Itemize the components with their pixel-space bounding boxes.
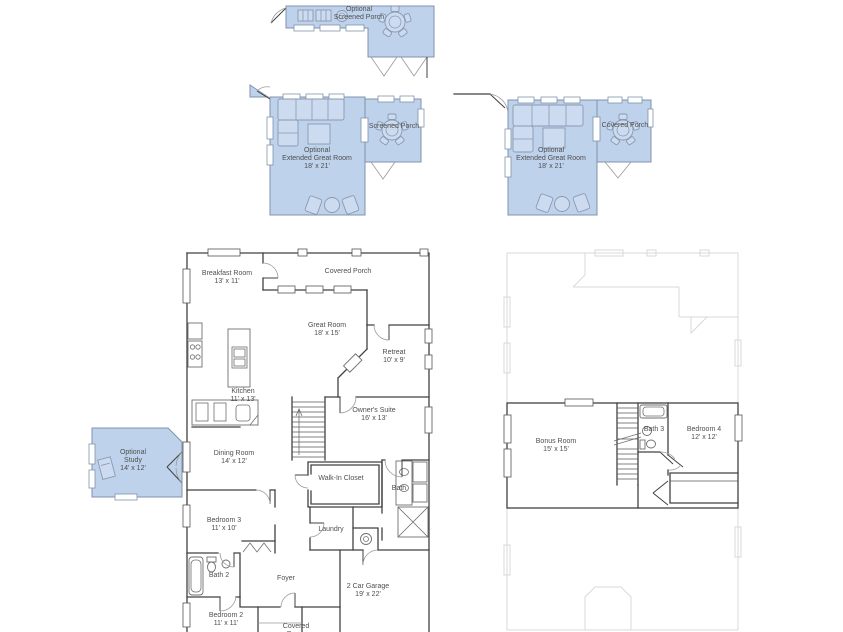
room-dims: 16' x 13' xyxy=(334,415,414,423)
room-name: 2 Car Garage xyxy=(328,583,408,591)
vanity-icon xyxy=(396,461,427,505)
room-label-bedroom-4: Bedroom 4 12' x 12' xyxy=(664,426,744,442)
room-label-foyer: Foyer xyxy=(261,575,311,583)
wall-outline xyxy=(507,403,738,508)
room-name: Owner's Suite xyxy=(334,407,414,415)
room-dims: 11' x 13' xyxy=(213,396,273,404)
room-dims: 18' x 21' xyxy=(496,163,606,171)
room-label-bonus-room: Bonus Room 15' x 15' xyxy=(516,438,596,454)
room-dims: 14' x 12' xyxy=(103,465,163,473)
room-name: Bedroom 4 xyxy=(664,426,744,434)
room-label-owners-suite: Owner's Suite 16' x 13' xyxy=(334,407,414,423)
room-label-great-room: Great Room 18' x 15' xyxy=(287,322,367,338)
room-name: Walk-In Closet xyxy=(317,475,365,483)
bathtub-icon xyxy=(640,405,667,418)
room-name: Bedroom 2 xyxy=(186,612,266,620)
door-swing-icon xyxy=(653,452,683,505)
room-label-garage: 2 Car Garage 19' x 22' xyxy=(328,583,408,599)
sink-icon xyxy=(222,560,230,568)
room-name: Bonus Room xyxy=(516,438,596,446)
room-dims: 15' x 15' xyxy=(516,446,596,454)
room-name: Screened Porch xyxy=(364,123,424,131)
room-label-covered-porch: Covered Porch xyxy=(308,268,388,276)
room-name: Breakfast Room xyxy=(187,270,267,278)
room-label-covered-porch-optional: Covered Porch xyxy=(595,122,655,130)
room-name: Covered Porch xyxy=(274,623,318,632)
refrigerator-icon xyxy=(188,323,202,339)
room-dims: 18' x 21' xyxy=(262,163,372,171)
room-label-dining-room: Dining Room 14' x 12' xyxy=(194,450,274,466)
room-name: Kitchen xyxy=(213,388,273,396)
room-prefix: Optional xyxy=(319,6,399,14)
window xyxy=(294,25,364,31)
room-label-laundry: Laundry xyxy=(301,526,361,534)
stairs-icon xyxy=(614,408,641,479)
room-name: Bath 2 xyxy=(194,572,244,580)
room-label-bedroom-2: Bedroom 2 11' x 11' xyxy=(186,612,266,628)
room-name: Covered Porch xyxy=(595,122,655,130)
room-prefix: Optional xyxy=(262,147,372,155)
room-label-walk-in-closet: Walk-In Closet xyxy=(317,475,365,483)
toilet-icon xyxy=(640,440,656,449)
room-label-ext-great-room-right: Optional Extended Great Room 18' x 21' xyxy=(496,147,606,171)
room-dims: 14' x 12' xyxy=(194,458,274,466)
room-label-kitchen: Kitchen 11' x 13' xyxy=(213,388,273,404)
room-dims: 12' x 12' xyxy=(664,434,744,442)
room-label-bath-2: Bath 2 xyxy=(194,572,244,580)
shower-icon xyxy=(398,507,428,537)
room-label-optional-screened-porch: Optional Screened Porch xyxy=(319,6,399,22)
room-name: Extended Great Room xyxy=(262,155,372,163)
room-name: Covered Porch xyxy=(308,268,388,276)
room-dims: 11' x 11' xyxy=(186,620,266,628)
water-heater-icon xyxy=(361,534,372,545)
armchair-icon xyxy=(305,195,360,215)
floorplan-canvas: Optional Screened Porch Optional Extende… xyxy=(0,0,843,632)
room-label-ext-great-room-left: Optional Extended Great Room 18' x 21' xyxy=(262,147,372,171)
room-dims: 13' x 11' xyxy=(187,278,267,286)
room-name: Dining Room xyxy=(194,450,274,458)
toilet-icon xyxy=(207,557,216,572)
room-name: Extended Great Room xyxy=(496,155,606,163)
coffee-table-icon xyxy=(308,124,330,144)
room-name: Bath xyxy=(379,485,419,493)
room-prefix: Optional xyxy=(103,449,163,457)
room-name: Laundry xyxy=(301,526,361,534)
room-label-bedroom-3: Bedroom 3 11' x 10' xyxy=(184,517,264,533)
door-swing-icon xyxy=(220,263,402,623)
room-label-screened-porch: Screened Porch xyxy=(364,123,424,131)
room-dims: 11' x 10' xyxy=(184,525,264,533)
room-label-front-porch: Covered Porch xyxy=(274,623,318,632)
room-label-optional-study: Optional Study 14' x 12' xyxy=(103,449,163,473)
room-dims: 10' x 9' xyxy=(364,357,424,365)
room-name: Screened Porch xyxy=(319,14,399,22)
room-name: Foyer xyxy=(261,575,311,583)
range-icon xyxy=(188,341,202,367)
window xyxy=(183,249,432,627)
room-dims: 18' x 15' xyxy=(287,330,367,338)
room-label-bath: Bath xyxy=(379,485,419,493)
room-name: Bedroom 3 xyxy=(184,517,264,525)
stairs-icon xyxy=(292,402,325,457)
room-name: Study xyxy=(103,457,163,465)
coffee-table-icon xyxy=(543,128,565,148)
room-dims: 19' x 22' xyxy=(328,591,408,599)
room-name: Great Room xyxy=(287,322,367,330)
room-name: Retreat xyxy=(364,349,424,357)
closet-bifold-icon xyxy=(243,543,271,552)
room-label-retreat: Retreat 10' x 9' xyxy=(364,349,424,365)
kitchen-island-icon xyxy=(228,329,250,387)
room-label-breakfast-room: Breakfast Room 13' x 11' xyxy=(187,270,267,286)
room-prefix: Optional xyxy=(496,147,606,155)
